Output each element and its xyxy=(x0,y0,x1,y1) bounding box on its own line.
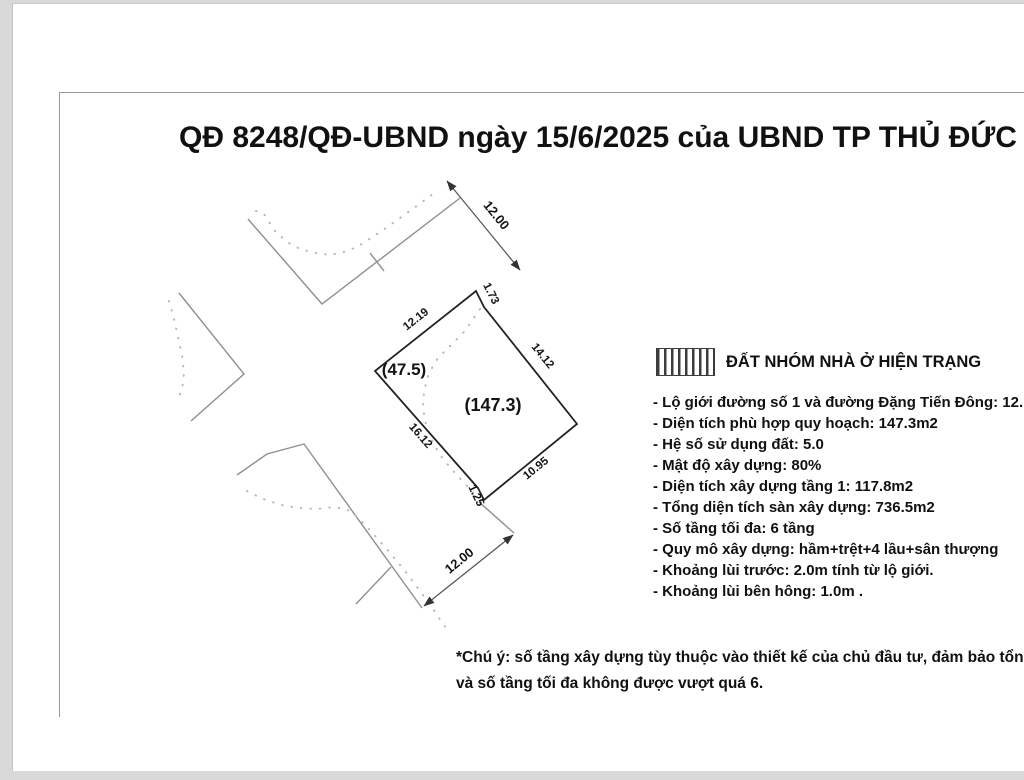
lower-dotted-arc xyxy=(247,491,448,631)
detail-building-scale: - Quy mô xây dựng: hầm+trệt+4 lầu+sân th… xyxy=(653,539,1024,560)
screenshot-root: { "page": { "title": "QĐ 8248/QĐ-UBND ng… xyxy=(0,0,1024,780)
edge-label-ne: 14.12 xyxy=(529,341,556,371)
legend-row: ĐẤT NHÓM NHÀ Ở HIỆN TRẠNG xyxy=(656,348,981,376)
legend-label: ĐẤT NHÓM NHÀ Ở HIỆN TRẠNG xyxy=(726,353,981,372)
parcel-clipped-area-label: (47.5) xyxy=(382,360,426,379)
lower-road-edge xyxy=(237,444,422,608)
south-corner-road-extension xyxy=(479,502,514,533)
detail-floor1-area: - Diện tích xây dựng tầng 1: 117.8m2 xyxy=(653,476,1024,497)
upper-road-tick xyxy=(370,253,384,271)
detail-total-floor-area: - Tổng diện tích sàn xây dựng: 736.5m2 xyxy=(653,497,1024,518)
left-road-corner xyxy=(179,293,244,421)
left-dotted-arc xyxy=(169,301,184,400)
detail-max-floors: - Số tầng tối đa: 6 tầng xyxy=(653,518,1024,539)
document-page: QĐ 8248/QĐ-UBND ngày 15/6/2025 của UBND … xyxy=(12,3,1024,771)
detail-road-boundary: - Lộ giới đường số 1 và đường Đặng Tiến … xyxy=(653,392,1024,413)
detail-front-setback: - Khoảng lùi trước: 2.0m tính từ lộ giới… xyxy=(653,560,1024,581)
detail-side-setback: - Khoảng lùi bên hông: 1.0m . xyxy=(653,581,1024,602)
planned-boundary-dotted-lines xyxy=(169,191,448,631)
footnote-line-1: *Chú ý: số tầng xây dựng tùy thuộc vào t… xyxy=(456,645,1024,671)
upper-dotted-arc xyxy=(256,191,437,255)
bottom-road-width-label: 12.00 xyxy=(442,544,477,576)
bottom-road-dimension-line xyxy=(424,535,513,606)
planning-details-list: - Lộ giới đường số 1 và đường Đặng Tiến … xyxy=(653,392,1024,602)
detail-building-density: - Mật độ xây dựng: 80% xyxy=(653,455,1024,476)
hatch-swatch-icon xyxy=(656,348,715,376)
parcel-main-area-label: (147.3) xyxy=(464,395,521,415)
upper-road-edge xyxy=(248,198,460,304)
lower-road-tick xyxy=(356,567,391,604)
footnote-line-2: và số tầng tối đa không được vượt quá 6. xyxy=(456,671,1024,697)
detail-compliant-area: - Diện tích phù hợp quy hoạch: 147.3m2 xyxy=(653,413,1024,434)
detail-land-use-coefficient: - Hệ số sử dụng đất: 5.0 xyxy=(653,434,1024,455)
footnote: *Chú ý: số tầng xây dựng tùy thuộc vào t… xyxy=(456,645,1024,697)
edge-label-n: 1.73 xyxy=(480,281,501,306)
